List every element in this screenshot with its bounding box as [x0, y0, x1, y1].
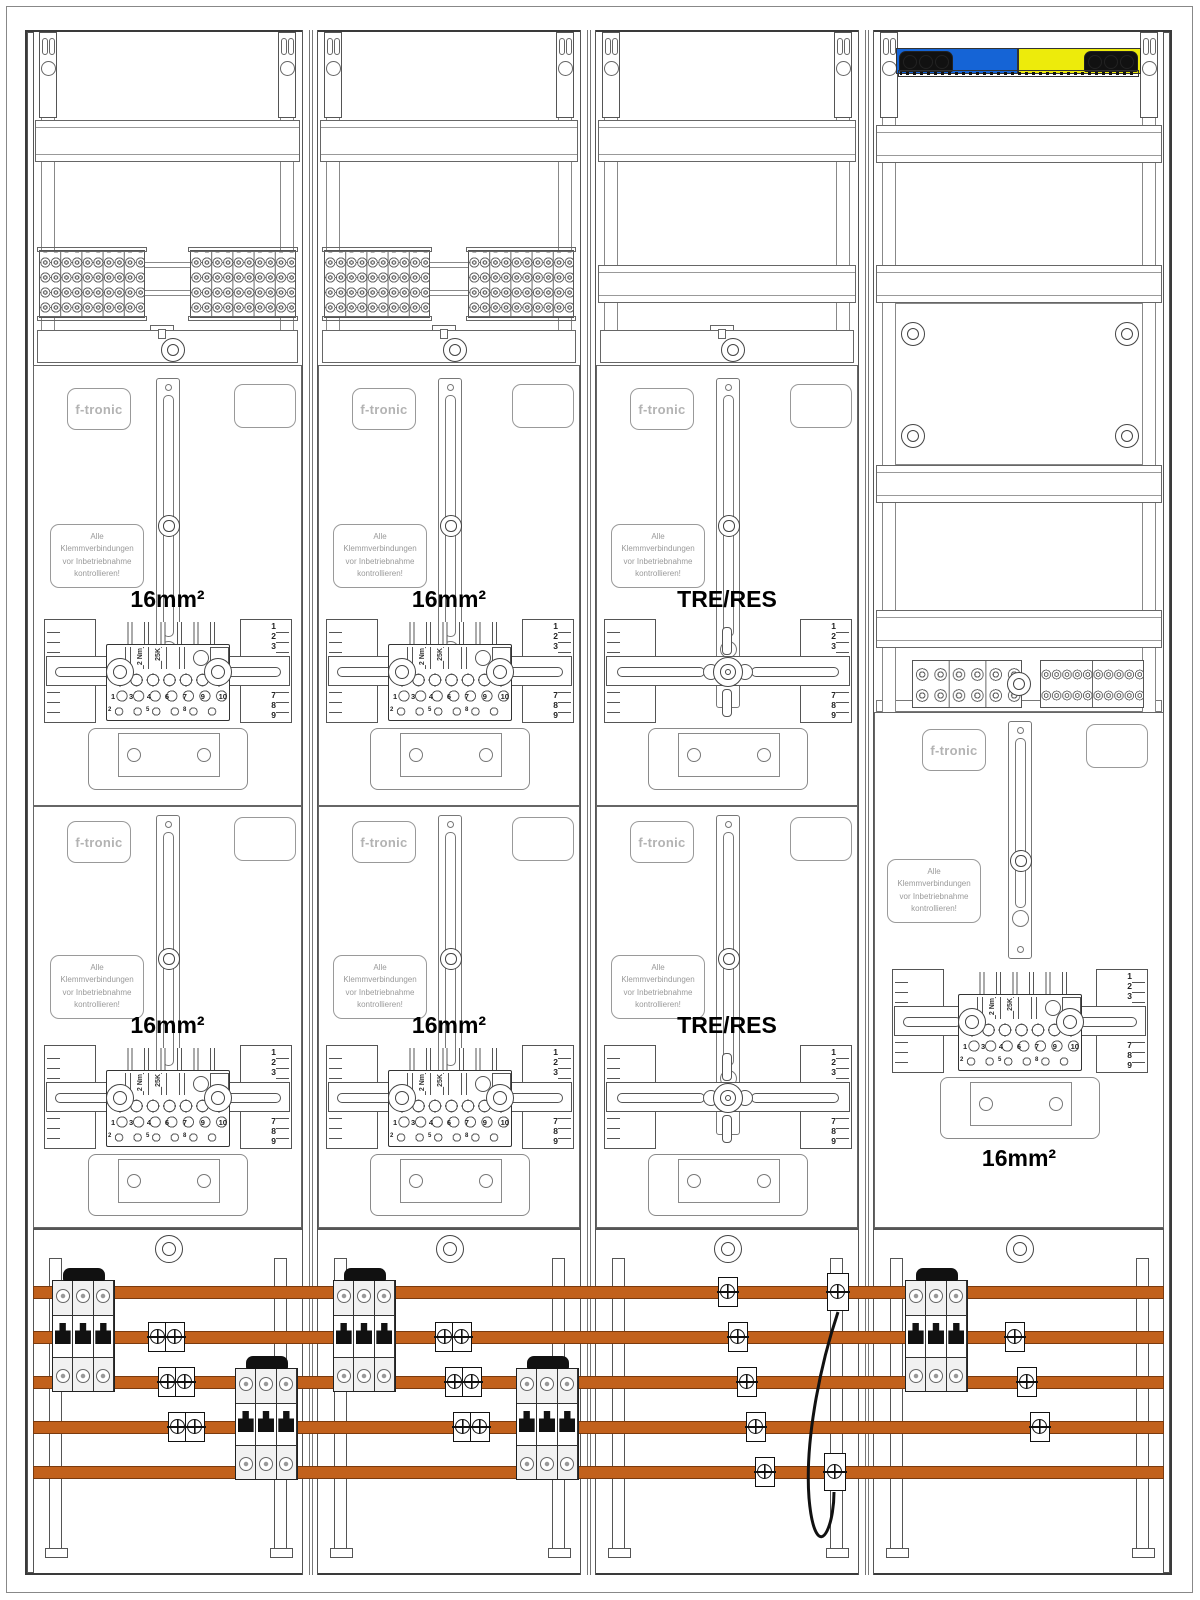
busbar-L1 [33, 1286, 1164, 1299]
small-number: 5 [146, 1133, 149, 1139]
plate-hole [409, 1174, 423, 1188]
mounting-plate [648, 1154, 808, 1216]
terminal-number: 3 [129, 692, 133, 701]
mounting-rail-head [556, 32, 574, 118]
small-number: 2 [390, 1133, 393, 1139]
terminal-number: 6 [165, 692, 169, 701]
ruler-number: 9 [271, 1137, 276, 1146]
meter-terminal-block-16mm: 1 2 3 5 7 8 9 2 Nm 25K [326, 1045, 574, 1149]
carrier-screw [440, 948, 462, 970]
main-terminal-block [39, 250, 145, 318]
warning-line: kontrollieren! [336, 999, 424, 1011]
terminal-hole [1104, 55, 1118, 69]
fixing-hole [901, 424, 925, 448]
carrier-screw [1010, 850, 1032, 872]
block-screw [958, 1008, 986, 1036]
plate-hole [1049, 1097, 1063, 1111]
small-number: 5 [428, 1133, 431, 1139]
ruler-number: 2 [553, 1058, 558, 1067]
terminal-hole [919, 55, 933, 69]
circuit-breaker-3pole [333, 1280, 396, 1392]
terminal-size-label: TRE/RES [597, 1012, 857, 1039]
warning-line: Alle Klemmverbindungen [614, 531, 702, 556]
warning-label: Alle Klemmverbindungen vor Inbetriebnahm… [611, 955, 705, 1019]
adjust-slot [751, 667, 839, 677]
terminal-size-label: 16mm² [875, 1145, 1163, 1172]
adjust-slot [225, 667, 281, 677]
ruler-number: 2 [831, 632, 836, 641]
ruler-number: 2 [1127, 982, 1132, 991]
ruler-number: 2 [271, 632, 276, 641]
plate-hole [127, 748, 141, 762]
breaker-toggle [928, 1323, 944, 1344]
ruler-number: 3 [831, 642, 836, 651]
circuit-breaker-3pole [905, 1280, 968, 1392]
terminal-number: 7 [183, 692, 187, 701]
warning-line: Alle Klemmverbindungen [890, 866, 978, 891]
rail-hole [447, 384, 454, 391]
adjust-slot [903, 1017, 961, 1027]
ruler-number: 1 [831, 1048, 836, 1057]
clamp-pins [398, 622, 502, 644]
brand-logo: f-tronic [630, 821, 694, 863]
small-number: 5 [146, 707, 149, 713]
terminal-hole [935, 55, 949, 69]
warning-label: Alle Klemmverbindungen vor Inbetriebnahm… [887, 859, 981, 923]
breaker-pole [375, 1281, 395, 1391]
breaker-pole [236, 1369, 256, 1479]
din-rail [598, 120, 856, 162]
breaker-toggle [356, 1323, 372, 1344]
busbar-comb [898, 70, 1139, 77]
adjust-slot [751, 1093, 839, 1103]
cable-tray [600, 330, 854, 363]
terminal-number: 9 [201, 692, 205, 701]
ruler-number: 8 [831, 1127, 836, 1136]
terminal-hole [1088, 55, 1102, 69]
terminal-number: 3 [411, 1118, 415, 1127]
small-number: 8 [183, 1133, 186, 1139]
main-terminal-block [324, 250, 430, 318]
warning-line: Alle Klemmverbindungen [53, 531, 141, 556]
mounting-plate [648, 728, 808, 790]
terminal-small-row: 2 5 8 [395, 1132, 507, 1144]
warning-line: Alle Klemmverbindungen [53, 962, 141, 987]
clamp-pins [398, 1048, 502, 1070]
warning-label: Alle Klemmverbindungen vor Inbetriebnahm… [333, 955, 427, 1019]
busbar-support-rail [890, 1258, 903, 1550]
type-label: 25K [437, 648, 444, 661]
terminal-number: 1 [111, 692, 115, 701]
breaker-pole [94, 1281, 114, 1391]
brand-logo-text: f-tronic [75, 835, 122, 850]
breaker-toggle [278, 1411, 294, 1432]
terminal-small-row: 2 5 8 [395, 706, 507, 718]
brand-logo: f-tronic [67, 388, 131, 430]
ruler-number: 2 [271, 1058, 276, 1067]
brand-logo: f-tronic [67, 821, 131, 863]
carrier-screw [440, 515, 462, 537]
ruler-number: 8 [553, 1127, 558, 1136]
adjust-slot [507, 667, 563, 677]
ruler-number: 3 [553, 1068, 558, 1077]
mounting-plate-inner [970, 1082, 1072, 1126]
fixing-hole [901, 322, 925, 346]
ruler-number: 3 [271, 642, 276, 651]
brand-logo-text: f-tronic [360, 402, 407, 417]
mounting-rail-head [39, 32, 57, 118]
bottom-section-top-line [33, 1228, 1164, 1230]
ruler-number: 1 [553, 622, 558, 631]
mounting-rail-head [880, 32, 898, 118]
mounting-rail-head [602, 32, 620, 118]
ruler-number: 2 [553, 632, 558, 641]
terminal-number: 9 [201, 1118, 205, 1127]
distribution-terminal-block [1040, 660, 1144, 708]
circuit-breaker-3pole [516, 1368, 579, 1480]
breaker-toggle [519, 1411, 535, 1432]
mounting-plate-inner [118, 733, 220, 777]
busbar-clamp [165, 1322, 185, 1352]
rail-slot [1015, 738, 1026, 908]
mounting-rail-head [324, 32, 342, 118]
plate-hole [197, 748, 211, 762]
adjust-slot [55, 667, 111, 677]
rail-hole [447, 821, 454, 828]
tray-screw-hole [161, 338, 185, 362]
breaker-cap [63, 1268, 105, 1281]
circuit-breaker-3pole [235, 1368, 298, 1480]
tray-clamp [150, 325, 174, 331]
meter-terminal-block-16mm: 1 2 3 5 7 8 9 2 Nm 25K [892, 969, 1148, 1073]
block-screw [486, 658, 514, 686]
plate-hole [409, 748, 423, 762]
ruler-number: 7 [831, 1117, 836, 1126]
meter-panel: f-tronic Alle Klemmverbindungen vor Inbe… [596, 365, 858, 806]
warning-line: vor Inbetriebnahme [336, 987, 424, 999]
adjust-slot [507, 1093, 563, 1103]
breaker-toggle [75, 1323, 91, 1344]
meter-panel: f-tronic Alle Klemmverbindungen vor Inbe… [318, 806, 580, 1228]
busbar-feed-clamp [824, 1453, 846, 1491]
ruler-number: 3 [831, 1068, 836, 1077]
adjust-slot [337, 667, 393, 677]
center-screw [713, 1083, 743, 1113]
ruler-number: 8 [271, 1127, 276, 1136]
small-number: 2 [108, 1133, 111, 1139]
ruler-number: 7 [1127, 1041, 1132, 1050]
plate-hole [757, 748, 771, 762]
mounting-rail-head [1140, 32, 1158, 118]
breaker-pole [277, 1369, 297, 1479]
small-number: 2 [108, 707, 111, 713]
din-rail [876, 125, 1162, 163]
carrier-screw [718, 515, 740, 537]
terminal-size-label: 16mm² [319, 1012, 579, 1039]
small-number: 2 [960, 1057, 963, 1063]
terminal-number: 6 [447, 692, 451, 701]
meter-panel: f-tronic Alle Klemmverbindungen vor Inbe… [318, 365, 580, 806]
busbar-support-rail [1136, 1258, 1149, 1550]
small-number: 2 [390, 707, 393, 713]
plate-hole [197, 1174, 211, 1188]
mounting-plate-inner [678, 1159, 780, 1203]
warning-line: Alle Klemmverbindungen [336, 531, 424, 556]
warning-label: Alle Klemmverbindungen vor Inbetriebnahm… [50, 524, 144, 588]
label-window [1086, 724, 1148, 768]
ruler-number: 7 [271, 1117, 276, 1126]
terminal-number: 4 [429, 1118, 433, 1127]
breaker-toggle [908, 1323, 924, 1344]
warning-label: Alle Klemmverbindungen vor Inbetriebnahm… [333, 524, 427, 588]
breaker-cap [246, 1356, 288, 1369]
busbar-L2 [33, 1331, 1164, 1344]
small-number: 8 [465, 707, 468, 713]
din-rail [876, 465, 1162, 503]
brand-logo-text: f-tronic [360, 835, 407, 850]
terminal-number: 3 [981, 1042, 985, 1051]
breaker-pole [53, 1281, 73, 1391]
adjust-slot [337, 1093, 393, 1103]
label-window [790, 384, 852, 428]
breaker-pole [517, 1369, 537, 1479]
mounting-field [890, 303, 1148, 465]
breaker-pole [334, 1281, 354, 1391]
mounting-plate-inner [400, 1159, 502, 1203]
terminal-number: 10 [501, 692, 509, 701]
busbar-PE [33, 1466, 1164, 1479]
panel-fixing-hole [714, 1235, 742, 1263]
breaker-pole [73, 1281, 93, 1391]
terminal-number: 7 [465, 1118, 469, 1127]
busbar-L3 [33, 1376, 1164, 1389]
label-window [512, 817, 574, 861]
ruler-number: 7 [553, 1117, 558, 1126]
type-label: 25K [437, 1074, 444, 1087]
brand-logo-text: f-tronic [638, 835, 685, 850]
panel-fixing-hole [436, 1235, 464, 1263]
ruler-number: 1 [553, 1048, 558, 1057]
meter-terminal-block-tre: 1 2 3 5 7 8 9 [604, 619, 852, 723]
small-number: 5 [428, 707, 431, 713]
busbar-clamp [185, 1412, 205, 1442]
mounting-plate [940, 1077, 1100, 1139]
torque-label: 2 Nm [137, 1074, 144, 1091]
rail-hole [165, 821, 172, 828]
breaker-pole [537, 1369, 557, 1479]
warning-line: kontrollieren! [614, 999, 702, 1011]
terminal-number: 9 [1053, 1042, 1057, 1051]
din-rail [876, 265, 1162, 303]
terminal-number: 1 [393, 692, 397, 701]
ruler-number: 1 [1127, 972, 1132, 981]
plate-hole [687, 1174, 701, 1188]
breaker-cap [916, 1268, 958, 1281]
warning-line: vor Inbetriebnahme [336, 556, 424, 568]
busbar-clamp [728, 1322, 748, 1352]
terminal-number: 10 [219, 692, 227, 701]
block-screw [388, 658, 416, 686]
mounting-plate [370, 728, 530, 790]
cable-tray [37, 330, 298, 363]
breaker-toggle [539, 1411, 555, 1432]
terminal-number: 1 [111, 1118, 115, 1127]
clamp-pins [116, 1048, 220, 1070]
label-window [512, 384, 574, 428]
brand-logo: f-tronic [630, 388, 694, 430]
terminal-number: 3 [129, 1118, 133, 1127]
breaker-pole [354, 1281, 374, 1391]
terminal-number: 9 [483, 1118, 487, 1127]
terminal-size-label: 16mm² [319, 586, 579, 613]
block-screw [106, 1084, 134, 1112]
rail-hole [1017, 727, 1024, 734]
breaker-pole [558, 1369, 578, 1479]
ruler-number: 9 [553, 1137, 558, 1146]
adjust-slot [225, 1093, 281, 1103]
warning-line: kontrollieren! [53, 999, 141, 1011]
terminal-size-label: 16mm² [34, 586, 301, 613]
brand-logo-text: f-tronic [75, 402, 122, 417]
terminal-number-row: 13467910 [963, 1039, 1079, 1053]
din-rail [35, 120, 300, 162]
busbar-clamp [1005, 1322, 1025, 1352]
small-number: 5 [998, 1057, 1001, 1063]
breaker-toggle [336, 1323, 352, 1344]
mounting-plate [88, 728, 248, 790]
busbar-clamp [718, 1277, 738, 1307]
plate-hole [979, 1097, 993, 1111]
ruler-number: 9 [831, 711, 836, 720]
mounting-plate-inner [678, 733, 780, 777]
rail-hole [165, 384, 172, 391]
ruler-number: 8 [553, 701, 558, 710]
plate-hole [479, 1174, 493, 1188]
main-terminal-block [468, 250, 574, 318]
vertical-slot [722, 689, 732, 717]
torque-label: 2 Nm [137, 648, 144, 665]
label-window [234, 384, 296, 428]
ruler-number: 7 [831, 691, 836, 700]
carrier-screw [158, 948, 180, 970]
center-screw-hole [1007, 672, 1031, 696]
warning-label: Alle Klemmverbindungen vor Inbetriebnahm… [611, 524, 705, 588]
warning-line: vor Inbetriebnahme [614, 556, 702, 568]
panel-fixing-hole [155, 1235, 183, 1263]
adjust-slot [55, 1093, 111, 1103]
terminal-number: 4 [147, 692, 151, 701]
terminal-number: 7 [465, 692, 469, 701]
type-label: 25K [1007, 998, 1014, 1011]
din-rail [876, 610, 1162, 648]
tray-clamp [432, 325, 456, 331]
brand-logo-text: f-tronic [930, 743, 977, 758]
mounting-plate [88, 1154, 248, 1216]
vertical-slot [722, 1115, 732, 1143]
meter-panel: f-tronic Alle Klemmverbindungen vor Inbe… [596, 806, 858, 1228]
busbar-clamp [175, 1367, 195, 1397]
busbar-clamp [755, 1457, 775, 1487]
main-terminal-block [190, 250, 296, 318]
breaker-cap [344, 1268, 386, 1281]
plate-hole [757, 1174, 771, 1188]
busbar-clamp [737, 1367, 757, 1397]
ruler-number: 1 [831, 622, 836, 631]
ruler-number: 8 [831, 701, 836, 710]
busbar-support-rail [612, 1258, 625, 1550]
block-screw [388, 1084, 416, 1112]
warning-line: vor Inbetriebnahme [53, 556, 141, 568]
terminal-number: 4 [429, 692, 433, 701]
warning-label: Alle Klemmverbindungen vor Inbetriebnahm… [50, 955, 144, 1019]
small-number: 8 [183, 707, 186, 713]
rail-hole [1017, 946, 1024, 953]
breaker-pole [906, 1281, 926, 1391]
torque-label: 2 Nm [419, 648, 426, 665]
type-label: 25K [155, 648, 162, 661]
warning-line: vor Inbetriebnahme [614, 987, 702, 999]
terminal-hole [903, 55, 917, 69]
mounting-plate-inner [400, 733, 502, 777]
terminal-number: 6 [447, 1118, 451, 1127]
mounting-rail-head [278, 32, 296, 118]
warning-line: vor Inbetriebnahme [890, 891, 978, 903]
center-screw [713, 657, 743, 687]
small-number: 8 [465, 1133, 468, 1139]
plate-hole [687, 748, 701, 762]
plate-hole [127, 1174, 141, 1188]
brand-logo-text: f-tronic [638, 402, 685, 417]
breaker-toggle [258, 1411, 274, 1432]
brand-logo: f-tronic [352, 388, 416, 430]
busbar-clamp [746, 1412, 766, 1442]
ruler-number: 2 [831, 1058, 836, 1067]
block-screw [486, 1084, 514, 1112]
clamp-pins [968, 972, 1072, 994]
terminal-number: 7 [183, 1118, 187, 1127]
warning-line: kontrollieren! [614, 568, 702, 580]
din-rail [598, 265, 856, 303]
busbar-clamp [1030, 1412, 1050, 1442]
warning-line: vor Inbetriebnahme [53, 987, 141, 999]
busbar-clamp [1017, 1367, 1037, 1397]
block-screw [204, 658, 232, 686]
terminal-number-row: 13467910 [393, 1115, 509, 1129]
breaker-pole [256, 1369, 276, 1479]
block-screw [106, 658, 134, 686]
breaker-pole [926, 1281, 946, 1391]
warning-line: Alle Klemmverbindungen [336, 962, 424, 987]
ruler-number: 7 [271, 691, 276, 700]
terminal-number: 6 [165, 1118, 169, 1127]
mounting-plate [370, 1154, 530, 1216]
cable-tray [322, 330, 576, 363]
carrier-screw [158, 515, 180, 537]
brand-logo: f-tronic [922, 729, 986, 771]
block-screw [1056, 1008, 1084, 1036]
pe-terminal-cap [1084, 51, 1138, 72]
circuit-breaker-3pole [52, 1280, 115, 1392]
terminal-small-row: 2 5 8 [965, 1056, 1077, 1068]
warning-line: kontrollieren! [53, 568, 141, 580]
type-label: 25K [155, 1074, 162, 1087]
meter-panel: f-tronic Alle Klemmverbindungen vor Inbe… [33, 365, 302, 806]
terminal-number: 10 [501, 1118, 509, 1127]
terminal-number: 10 [219, 1118, 227, 1127]
terminal-number: 9 [483, 692, 487, 701]
ruler-number: 1 [271, 1048, 276, 1057]
din-rail [320, 120, 578, 162]
